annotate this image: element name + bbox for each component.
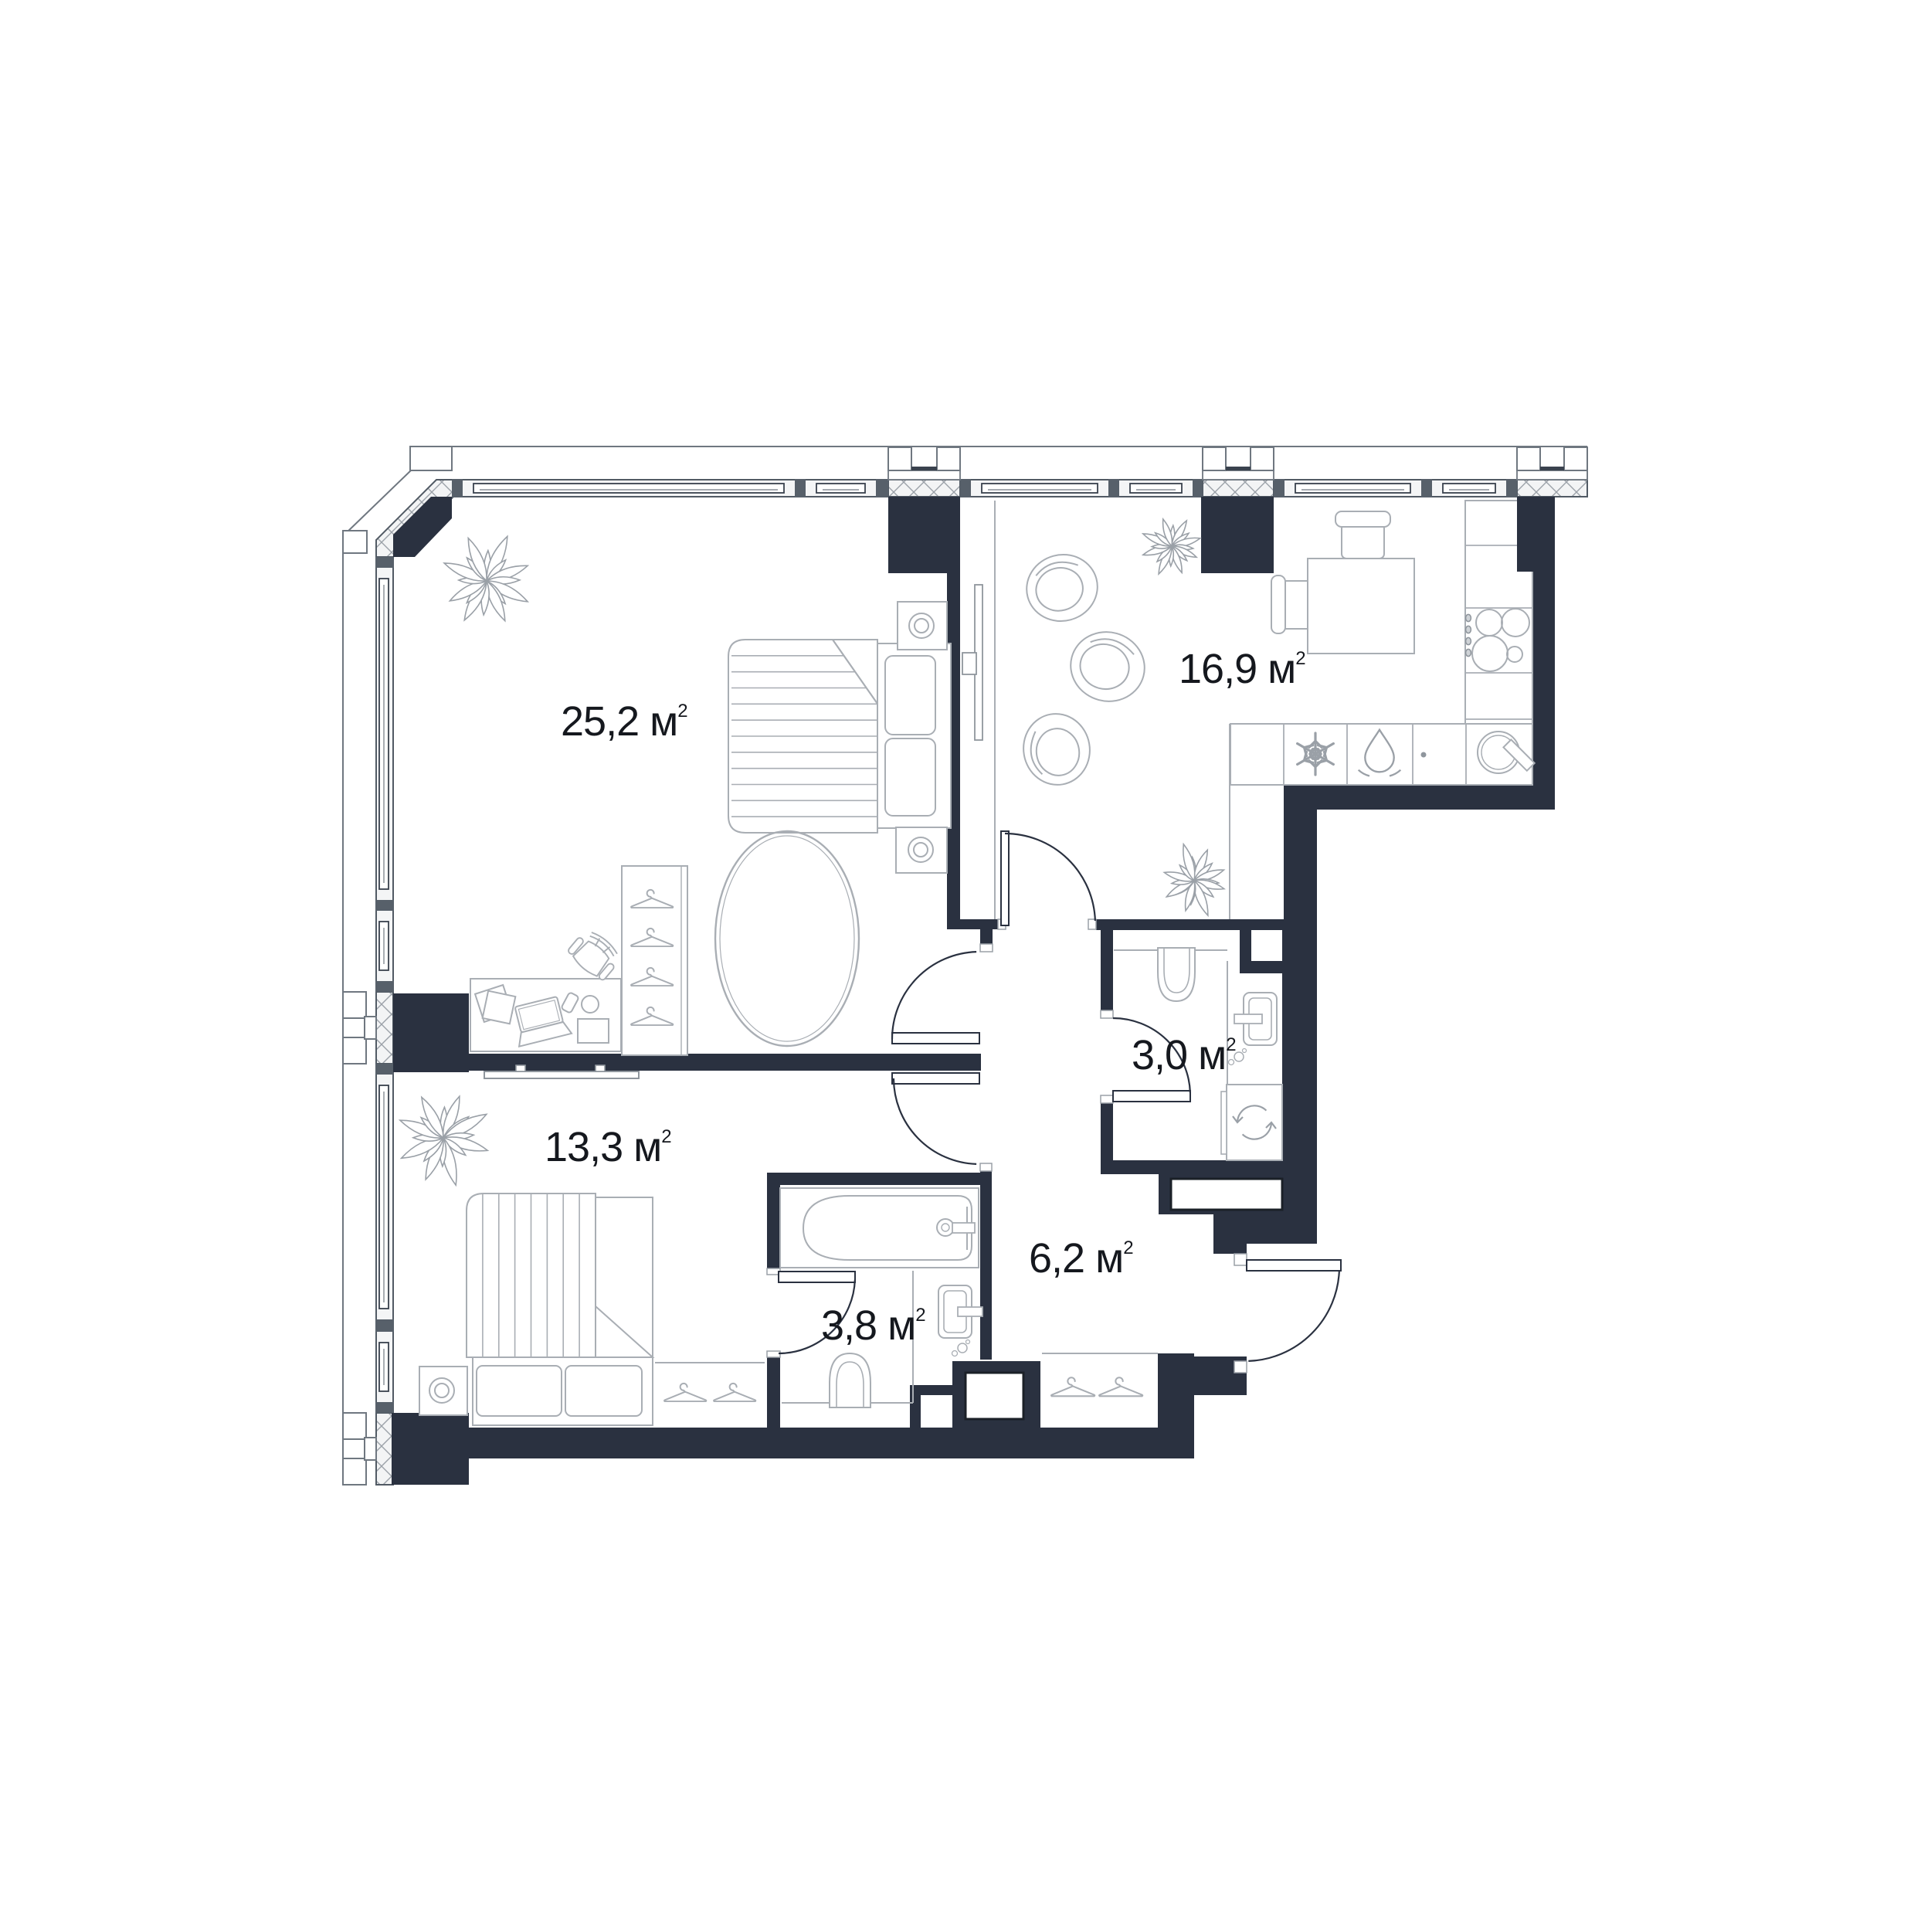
svg-text:3,8 м2: 3,8 м2 — [821, 1302, 925, 1349]
svg-text:25,2 м2: 25,2 м2 — [561, 698, 687, 745]
svg-text:3,0 м2: 3,0 м2 — [1132, 1032, 1236, 1078]
svg-text:6,2 м2: 6,2 м2 — [1029, 1235, 1133, 1282]
svg-text:16,9 м2: 16,9 м2 — [1179, 646, 1305, 692]
svg-text:13,3 м2: 13,3 м2 — [545, 1124, 671, 1170]
